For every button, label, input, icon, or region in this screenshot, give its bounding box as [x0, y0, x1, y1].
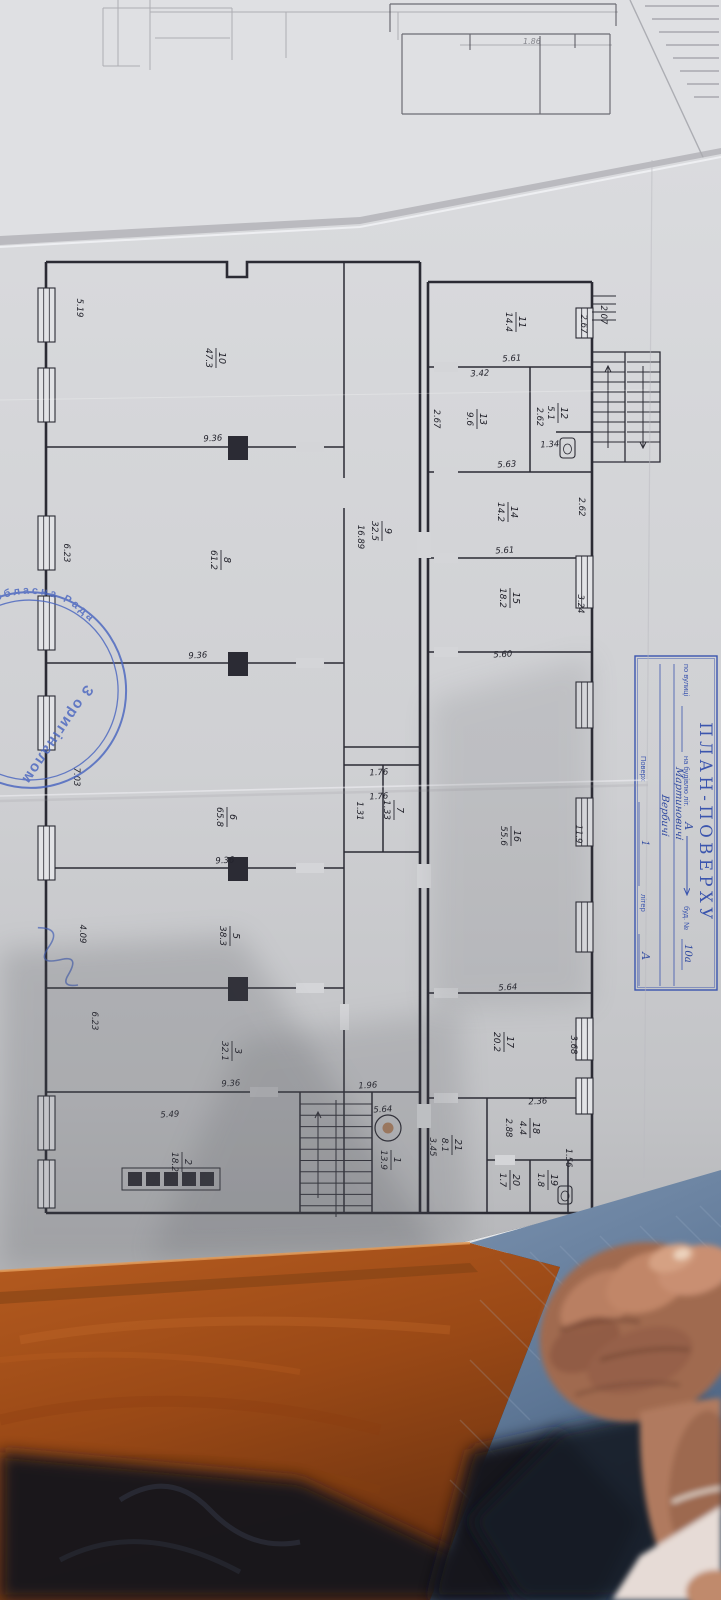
- room-number: 10: [216, 352, 227, 364]
- room-number: 6: [227, 814, 238, 820]
- door-opening: [340, 478, 349, 508]
- dimension-label: 9.36: [203, 433, 223, 444]
- room-number: 18: [530, 1122, 541, 1134]
- room-number: 17: [504, 1036, 515, 1048]
- dimension-label: 1.31: [354, 802, 364, 821]
- dimension-label: 9.36: [215, 855, 235, 866]
- dimension-label: 6.23: [61, 544, 71, 563]
- floor-plan-photo-canvas: 1.86 1047.3861.2932.5665.8538.3332.1218.…: [0, 0, 721, 1600]
- door-opening: [434, 647, 458, 657]
- street-label: по вулиці: [682, 664, 691, 697]
- room-area: 4.4: [517, 1121, 527, 1136]
- window-symbol: [38, 826, 55, 880]
- photo-of-floor-plan: 1.86 1047.3861.2932.5665.8538.3332.1218.…: [0, 0, 721, 1600]
- plan-title: ПЛАН-ПОВЕРХУ: [696, 722, 715, 923]
- door-opening: [296, 442, 324, 452]
- wall-pier: [228, 652, 248, 676]
- room-area: 61.2: [208, 550, 218, 570]
- door-opening: [296, 983, 324, 993]
- room-area: 14.4: [503, 312, 513, 332]
- dimension-label: 2.88: [503, 1119, 513, 1139]
- dimension-label: 1.76: [369, 767, 389, 778]
- dimension-label: 5.19: [74, 299, 84, 318]
- room-number: 15: [510, 592, 521, 604]
- dimension-label: 5.61: [502, 354, 521, 365]
- dimension-label: 3.24: [575, 595, 585, 614]
- room-number: 19: [548, 1174, 559, 1186]
- room-number: 8: [221, 557, 232, 563]
- door-opening: [296, 658, 324, 668]
- room-area: 14.2: [495, 502, 505, 522]
- door-opening: [417, 532, 431, 558]
- dimension-label: 2.62: [534, 408, 544, 427]
- window-symbol: [38, 516, 55, 570]
- room-area: 32.5: [369, 521, 379, 541]
- room-area: 9.6: [464, 412, 474, 427]
- dimension-label: 1.56: [563, 1149, 573, 1169]
- dimension-label: 5.63: [497, 460, 516, 471]
- window-symbol: [576, 1078, 593, 1114]
- room-area: 1.7: [497, 1173, 507, 1188]
- floor-value-handwritten: 1: [639, 840, 650, 846]
- window-symbol: [38, 288, 55, 342]
- room-number: 9: [382, 528, 393, 534]
- street-handwritten-1: Мартиновичі: [673, 765, 684, 841]
- dimension-label: 2.36: [528, 1096, 548, 1107]
- room-area: 5.1: [545, 406, 555, 420]
- door-opening: [417, 864, 431, 888]
- door-opening: [495, 1155, 515, 1165]
- dimension-label: 1.76: [369, 791, 389, 802]
- door-opening: [434, 467, 458, 477]
- street-handwritten-2: Вербичі: [659, 793, 670, 838]
- house-number-handwritten: 10а: [682, 944, 693, 963]
- room-number: 11: [516, 316, 527, 328]
- window-symbol: [38, 368, 55, 422]
- room-number: 12: [558, 407, 569, 419]
- window-symbol: [38, 596, 55, 650]
- room-area: 20.2: [491, 1032, 501, 1052]
- door-opening: [296, 863, 324, 873]
- dimension-label: 5.61: [495, 546, 514, 557]
- door-opening: [434, 553, 458, 563]
- pencil-dim-label: 1.86: [523, 37, 541, 46]
- dimension-label: 16.89: [355, 525, 365, 549]
- room-number: 13: [477, 413, 488, 425]
- wall-pier: [228, 436, 248, 460]
- dimension-label: 1.34: [540, 440, 559, 451]
- dimension-label: 2.62: [576, 498, 586, 517]
- room-area: 1.33: [381, 800, 391, 820]
- dimension-label: 2.67: [431, 410, 441, 430]
- room-area: 1.8: [535, 1173, 545, 1188]
- room-number: 20: [510, 1174, 521, 1186]
- door-opening: [434, 362, 458, 372]
- room-area: 18.2: [497, 588, 507, 608]
- dimension-label: 5.60: [493, 650, 512, 661]
- room-area: 47.3: [203, 348, 213, 368]
- room-number: 7: [394, 807, 405, 813]
- dimension-label: 3.42: [470, 369, 489, 380]
- dimension-label: 2.67: [578, 315, 588, 335]
- dimension-label: 4.09: [77, 925, 87, 944]
- room-area: 65.8: [214, 807, 224, 827]
- dimension-label: 2.07: [598, 306, 608, 326]
- room-number: 14: [508, 506, 519, 518]
- dimension-label: 3.68: [568, 1036, 578, 1056]
- dimension-label: 9.36: [188, 650, 208, 661]
- house-number-label: буд. №: [682, 906, 691, 930]
